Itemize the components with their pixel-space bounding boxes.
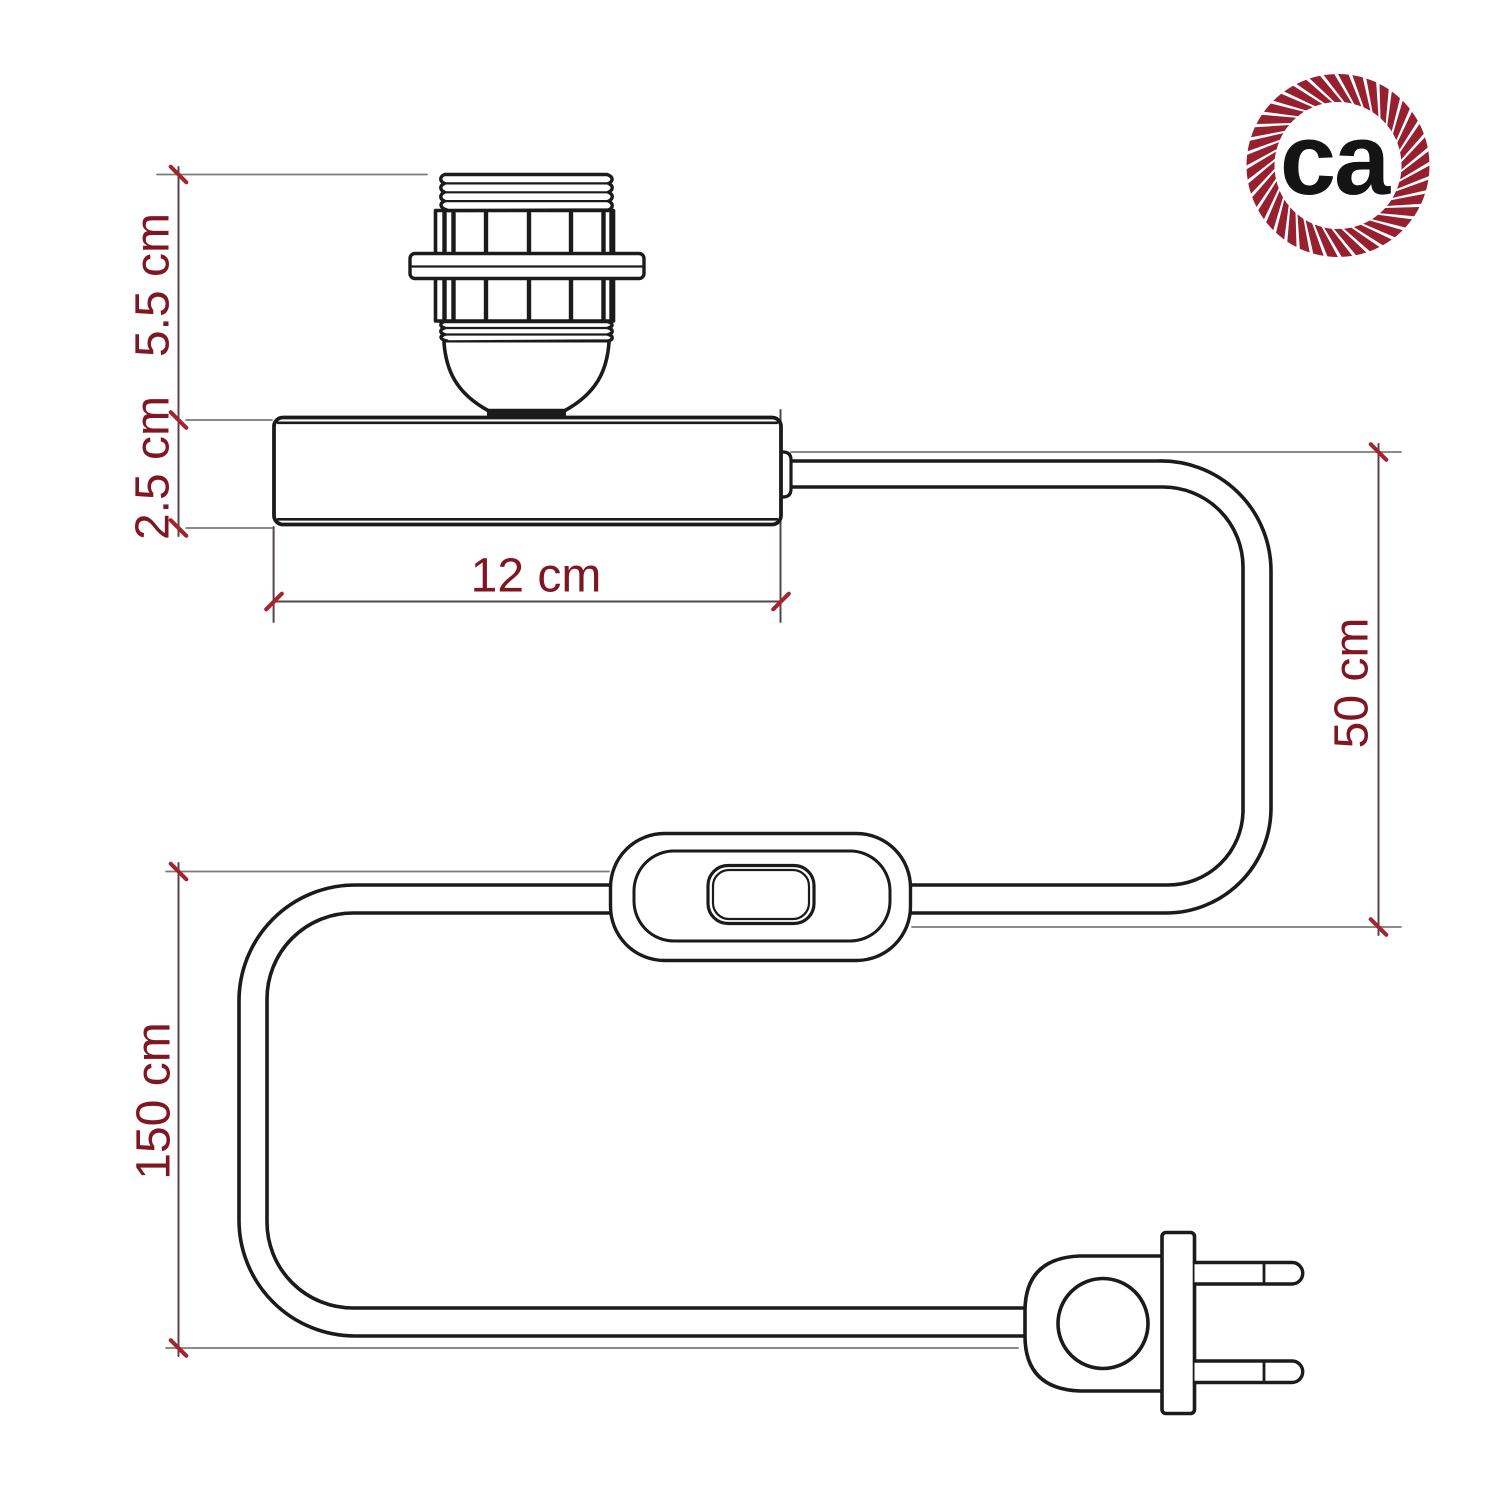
svg-text:ca: ca — [1280, 104, 1391, 216]
svg-text:50 cm: 50 cm — [1326, 618, 1379, 749]
svg-text:2.5 cm: 2.5 cm — [127, 396, 180, 540]
svg-text:5.5 cm: 5.5 cm — [127, 213, 180, 357]
svg-text:150 cm: 150 cm — [128, 1022, 181, 1179]
svg-text:12 cm: 12 cm — [471, 550, 602, 603]
